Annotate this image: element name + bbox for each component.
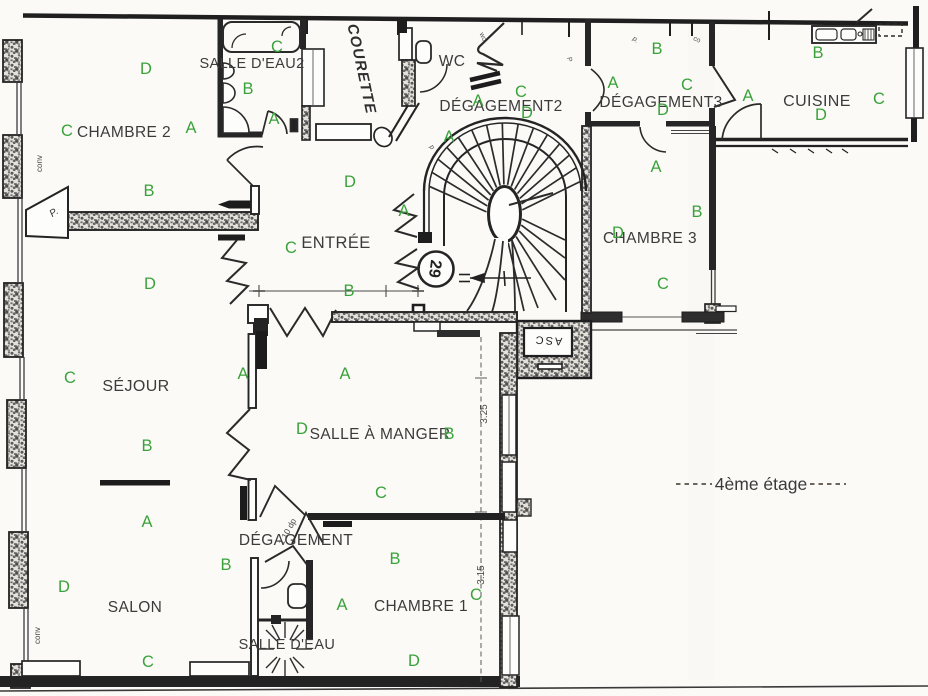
svg-text:WC: WC xyxy=(439,53,466,70)
svg-text:D: D xyxy=(521,104,533,122)
svg-text:D: D xyxy=(144,275,156,293)
svg-text:B: B xyxy=(343,282,354,300)
svg-text:4ème étage: 4ème étage xyxy=(715,474,807,494)
svg-text:A: A xyxy=(268,110,279,128)
svg-text:B: B xyxy=(443,425,454,443)
svg-text:A: A xyxy=(336,596,347,614)
svg-text:ENTRÉE: ENTRÉE xyxy=(301,233,370,252)
svg-text:ASC: ASC xyxy=(533,333,562,347)
svg-text:D: D xyxy=(408,652,420,670)
svg-text:A: A xyxy=(339,365,350,383)
svg-text:D: D xyxy=(344,173,356,191)
svg-text:DÉGAGEMENT2: DÉGAGEMENT2 xyxy=(439,98,562,115)
svg-text:A: A xyxy=(443,128,454,146)
svg-text:D: D xyxy=(58,578,70,596)
svg-text:A: A xyxy=(141,513,152,531)
svg-text:C: C xyxy=(142,653,154,671)
svg-text:B: B xyxy=(143,182,154,200)
svg-text:C: C xyxy=(64,369,76,387)
svg-text:C: C xyxy=(285,239,297,257)
svg-text:A: A xyxy=(237,365,248,383)
svg-text:A: A xyxy=(650,158,661,176)
svg-text:CHAMBRE 1: CHAMBRE 1 xyxy=(374,598,468,615)
svg-text:C: C xyxy=(681,76,693,94)
svg-text:29: 29 xyxy=(425,259,444,279)
svg-text:C: C xyxy=(515,83,527,101)
svg-text:B: B xyxy=(651,40,662,58)
svg-text:SÉJOUR: SÉJOUR xyxy=(102,376,169,395)
svg-text:A: A xyxy=(472,92,483,110)
svg-text:B: B xyxy=(812,44,823,62)
svg-text:CHAMBRE 2: CHAMBRE 2 xyxy=(77,124,171,141)
svg-text:D: D xyxy=(815,106,827,124)
svg-text:SALON: SALON xyxy=(108,599,163,616)
svg-text:A: A xyxy=(185,119,196,137)
svg-text:D: D xyxy=(612,224,624,242)
svg-text:C: C xyxy=(271,38,283,56)
svg-text:B: B xyxy=(220,556,231,574)
svg-text:B: B xyxy=(141,437,152,455)
svg-text:3.25: 3.25 xyxy=(479,404,490,424)
svg-text:conv: conv xyxy=(35,155,44,172)
svg-text:B: B xyxy=(691,203,702,221)
svg-text:SALLE D'EAU2: SALLE D'EAU2 xyxy=(199,56,304,72)
svg-text:A: A xyxy=(607,74,618,92)
svg-text:A: A xyxy=(742,87,753,105)
svg-text:C: C xyxy=(61,122,73,140)
svg-text:D: D xyxy=(296,420,308,438)
svg-text:C: C xyxy=(375,484,387,502)
svg-text:B: B xyxy=(389,550,400,568)
svg-text:SALLE D'EAU: SALLE D'EAU xyxy=(239,637,336,653)
svg-text:D: D xyxy=(140,60,152,78)
svg-text:A: A xyxy=(398,202,409,220)
svg-text:DÉGAGEMENT: DÉGAGEMENT xyxy=(239,532,353,549)
svg-text:SALLE À MANGER: SALLE À MANGER xyxy=(310,426,451,443)
svg-text:B: B xyxy=(242,80,253,98)
svg-text:conv: conv xyxy=(33,627,42,644)
svg-text:3.15: 3.15 xyxy=(476,565,487,585)
svg-text:C: C xyxy=(657,275,669,293)
svg-text:C: C xyxy=(873,90,885,108)
svg-text:C: C xyxy=(470,586,482,604)
svg-text:D: D xyxy=(657,101,669,119)
